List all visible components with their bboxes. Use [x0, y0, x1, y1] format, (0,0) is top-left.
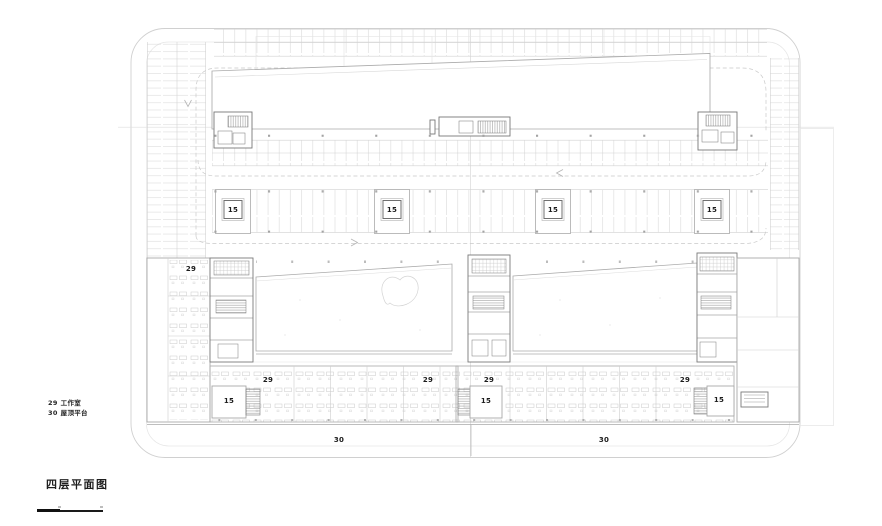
- stair-core-top-left: [214, 112, 252, 148]
- floor-plan-drawing: [0, 0, 882, 526]
- parking-stalls-left: [147, 42, 206, 263]
- arrow-icon: [557, 170, 564, 177]
- legend-item: 29工作室: [48, 399, 91, 409]
- right-wing: [737, 258, 799, 422]
- parking-stalls-row2: [212, 190, 768, 233]
- room-number-label: 29: [680, 376, 690, 384]
- arrow-icon: [351, 239, 358, 246]
- studio-building-left: [147, 258, 210, 422]
- legend-label: 屋顶平台: [61, 409, 88, 417]
- room-number-label: 15: [714, 396, 724, 404]
- legend-code: 29: [48, 399, 58, 407]
- room-number-label: 29: [263, 376, 273, 384]
- room-number-label: 15: [224, 397, 234, 405]
- legend-code: 30: [48, 409, 58, 417]
- floor-plan-sheet: 1515151515151529292929293030 29工作室 30屋顶平…: [0, 0, 882, 526]
- legend-label: 工作室: [61, 399, 81, 407]
- room-number-label: 15: [548, 206, 558, 214]
- room-number-label: 15: [387, 206, 397, 214]
- atrium-left: [256, 264, 452, 354]
- scale-segment: [60, 510, 103, 512]
- room-number-label: 30: [334, 436, 344, 444]
- scale-tick: [58, 506, 61, 508]
- legend: 29工作室 30屋顶平台: [48, 399, 91, 418]
- service-core-right: [697, 253, 737, 362]
- atrium-right: [513, 263, 697, 354]
- strip-core-a: [212, 386, 260, 418]
- roof-platform: [147, 425, 799, 457]
- scale-segment: [37, 509, 60, 512]
- legend-item: 30屋顶平台: [48, 409, 91, 419]
- service-core-left: [210, 258, 253, 362]
- room-number-label: 29: [186, 265, 196, 273]
- room-number-label: 29: [484, 376, 494, 384]
- stair-core-top-middle: [430, 117, 510, 136]
- room-number-label: 30: [599, 436, 609, 444]
- room-number-label: 29: [423, 376, 433, 384]
- room-number-label: 15: [228, 206, 238, 214]
- scale-tick: [100, 506, 103, 508]
- stair-core-top-right: [698, 112, 737, 150]
- sheet-title: 四层平面图: [46, 476, 109, 492]
- room-number-label: 15: [707, 206, 717, 214]
- service-core-middle: [468, 255, 510, 362]
- parking-stalls-right: [770, 58, 799, 250]
- room-number-label: 15: [481, 397, 491, 405]
- scale-bar: [37, 506, 107, 514]
